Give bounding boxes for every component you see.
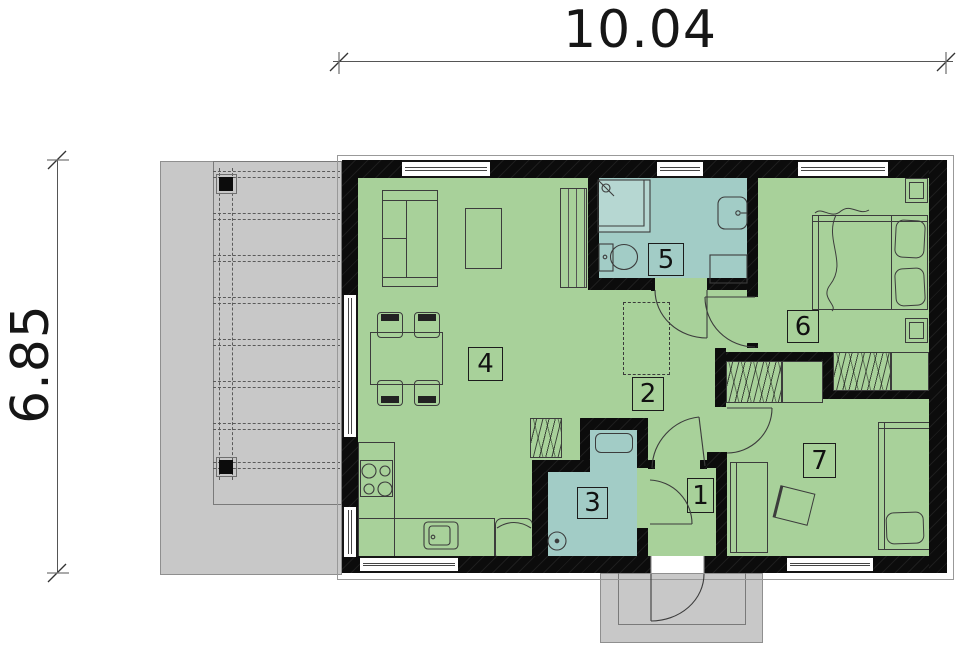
stove-burner-icon: [378, 482, 392, 496]
shower-diagonal: [598, 180, 614, 196]
stove-burner-icon: [362, 464, 376, 478]
toilet-flush-icon: [603, 255, 607, 259]
door-swings: [650, 290, 772, 621]
kitchen-fixtures: [362, 464, 566, 550]
dimension-ticks: [47, 52, 955, 582]
floor-drain-dot: [555, 539, 559, 543]
floor-plan-canvas: 10.04 6.85: [0, 0, 968, 648]
duvet-fold-line: [827, 215, 837, 311]
door-arc-bedroom6: [705, 297, 755, 347]
duvet-top-edge: [815, 208, 869, 214]
kitchen-sink-drain-icon: [431, 535, 435, 539]
bed-details: [815, 208, 869, 311]
fridge-arc: [497, 523, 531, 529]
door-leaf: [699, 417, 705, 466]
entrance-jambs: [651, 556, 704, 573]
washbasin-tap-icon: [736, 211, 740, 215]
stove-burner-icon: [380, 466, 390, 476]
plan-annotations-svg: [0, 0, 968, 648]
stove-burner-icon: [364, 484, 374, 494]
door-arc-utility: [650, 480, 692, 524]
door-arc-entrance: [651, 574, 704, 621]
door-arc-bathroom: [655, 290, 707, 338]
door-arc-hall: [652, 417, 699, 468]
door-arc-room7: [727, 408, 772, 453]
bathroom-fixtures: [598, 180, 747, 283]
washing-machine: [710, 255, 747, 283]
toilet-bowl: [611, 245, 638, 270]
